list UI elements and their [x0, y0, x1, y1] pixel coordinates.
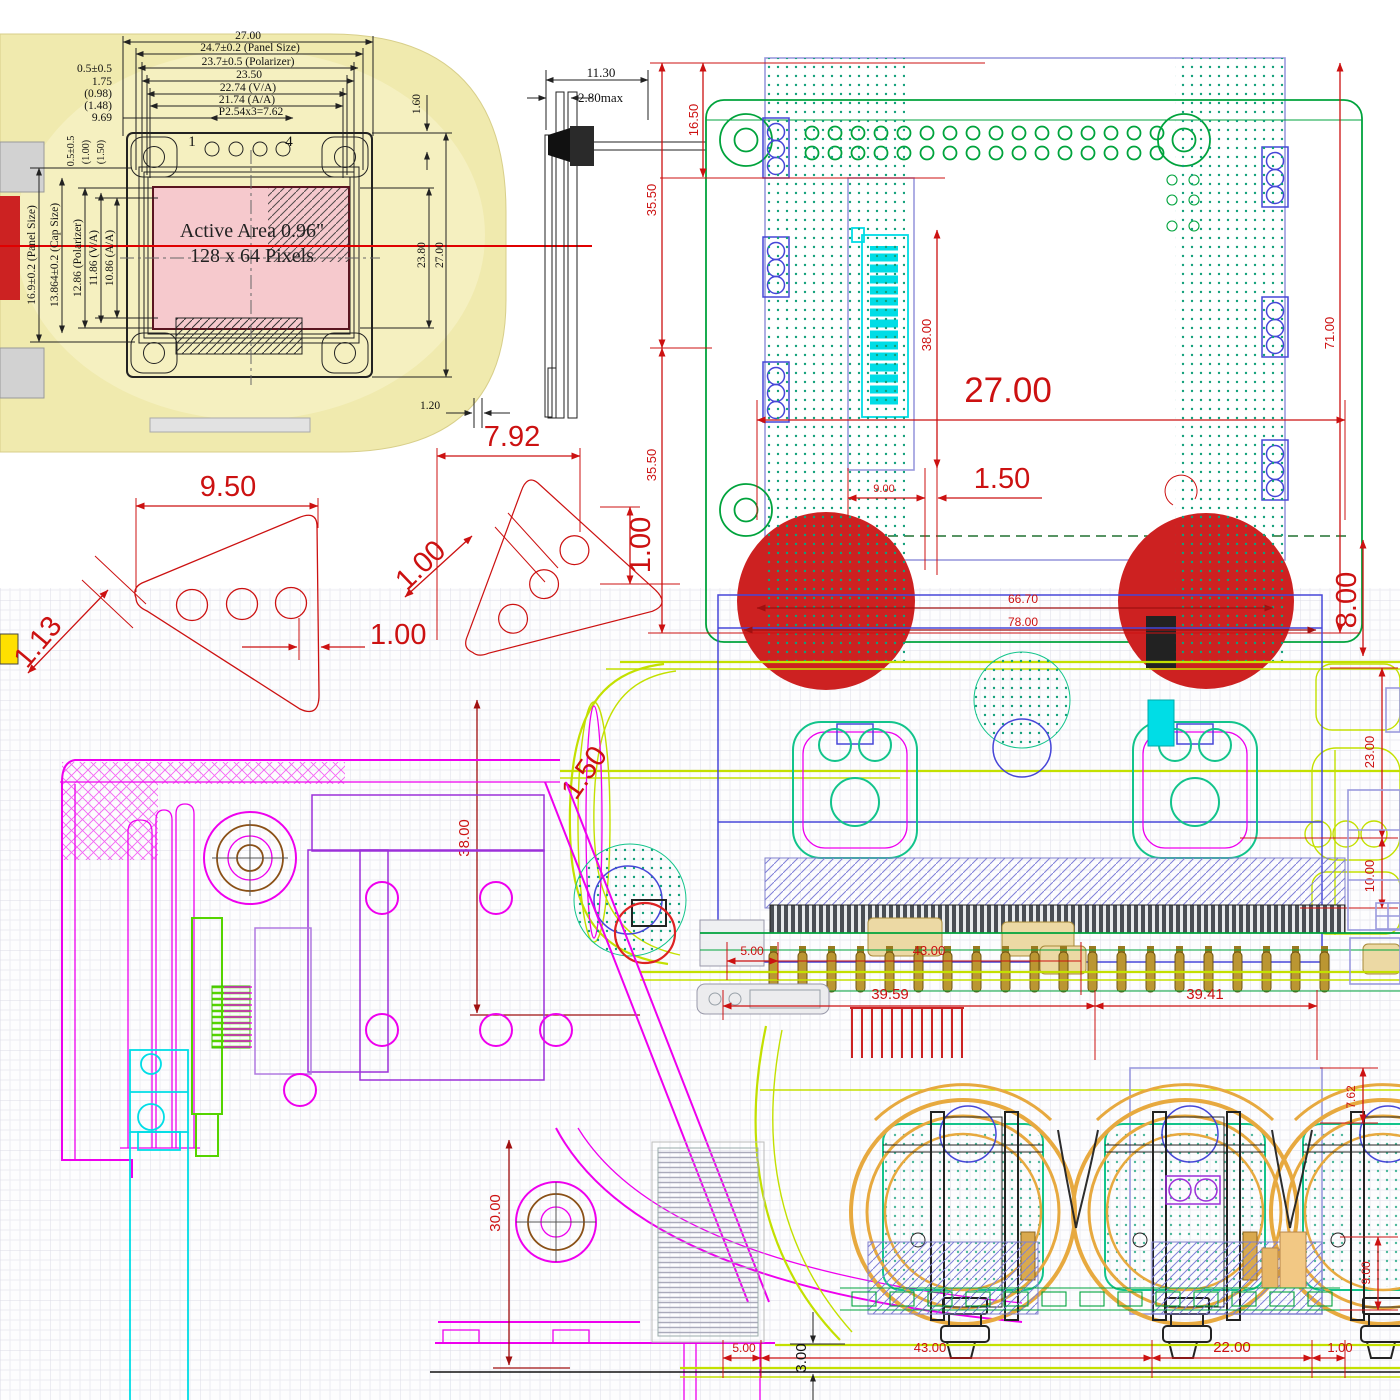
dim-35-50-lower: 35.50: [644, 449, 659, 482]
dim-9-00-r: 9.00: [1359, 1261, 1373, 1285]
dim-16-9: 16.9±0.2 (Panel Size): [26, 205, 38, 305]
dim-21-74: 21.74 (A/A): [219, 94, 275, 106]
fpc-connector-hatch: [176, 318, 302, 354]
dim-66-70: 66.70: [1008, 592, 1038, 606]
photo-fragment-tab-bottom: [0, 348, 44, 398]
dim-11-30: 11.30: [587, 65, 616, 80]
dim-7-92: 7.92: [484, 421, 540, 453]
tan-block-4: [1363, 944, 1400, 974]
grey-connector: [700, 920, 764, 966]
dim-1-20: 1.20: [420, 400, 440, 412]
dim-3-00: 3.00: [793, 1343, 810, 1372]
dim-23-80: 23.80: [416, 242, 428, 268]
pin-4-label: 4: [285, 134, 293, 150]
dim-2-80max: 2.80max: [578, 90, 624, 105]
dim-5-00-upper: 5.00: [740, 944, 764, 958]
tan-post: [1262, 1248, 1278, 1288]
dim-5-00: 5.00: [732, 1341, 756, 1355]
grey-socket: [697, 984, 829, 1014]
dim-27-00-big: 27.00: [964, 371, 1052, 410]
dim-78-00: 78.00: [1008, 615, 1038, 629]
black-component: [1146, 616, 1176, 668]
dim-12-86: 12.86 (Polarizer): [72, 219, 84, 297]
pin-1-label: 1: [188, 134, 196, 150]
side-connector-body: [570, 126, 594, 166]
dim-1-60: 1.60: [411, 94, 423, 114]
stipple-strip-left: [765, 58, 905, 662]
dim-left-top-c: (1.50): [96, 140, 107, 164]
header-hatch-band: [765, 858, 1345, 908]
tan-cylinder: [1280, 1232, 1306, 1288]
dim-left-top-a: 0.5±0.5: [66, 136, 77, 167]
photo-fragment-tab-top: [0, 142, 44, 192]
active-area-title: Active Area 0.96": [180, 220, 324, 242]
dim-pitch: P2.54x3=7.62: [219, 106, 284, 118]
dim-9-50: 9.50: [200, 471, 256, 503]
dim-8-00-big: 8.00: [1331, 572, 1363, 628]
dim-13-864: 13.864±0.2 (Cap Size): [49, 203, 61, 307]
bearing-hub-lower: [516, 1182, 596, 1262]
dim-43-00: 43.00: [914, 1340, 947, 1355]
dim-1-00-r: 1.00: [1327, 1340, 1352, 1355]
dim-7-62: 7.62: [1344, 1085, 1358, 1109]
stipple-circle: [974, 652, 1070, 748]
photo-fragment-red-strip: [0, 196, 20, 300]
dim-10-00: 10.00: [1362, 860, 1377, 893]
dim-23-50: 23.50: [236, 69, 262, 81]
cad-collage-canvas: 1 4 Active Area 0.96" 128 x 64 Pixels 27…: [0, 0, 1400, 1400]
dim-1-75: 1.75: [92, 76, 112, 88]
dim-10-86: 10.86 (A/A): [104, 230, 116, 286]
dim-1-48: (1.48): [84, 100, 112, 112]
stipple-strip-right: [1175, 58, 1285, 662]
dim-11-86: 11.86 (V/A): [88, 230, 100, 286]
dim-1-00: 1.00: [370, 619, 426, 651]
dim-1-00-vert: 1.00: [625, 517, 657, 573]
dim-1-50-big: 1.50: [974, 463, 1030, 495]
active-area-subtitle: 128 x 64 Pixels: [190, 245, 314, 267]
dim-30-00: 30.00: [487, 1194, 504, 1232]
grey-rack: [658, 1148, 758, 1336]
dim-23-7: 23.7±0.5 (Polarizer): [202, 56, 295, 68]
dim-0-98: (0.98): [84, 88, 112, 100]
cad-collage-page: 1 4 Active Area 0.96" 128 x 64 Pixels 27…: [0, 0, 1400, 1400]
photo-connector-strip: [150, 418, 310, 432]
dim-38-00: 38.00: [919, 319, 934, 352]
hatch-plate-left: [868, 1242, 1038, 1314]
dim-35-50-upper: 35.50: [644, 184, 659, 217]
dim-27-00: 27.00: [235, 30, 261, 42]
dim-39-59: 39.59: [871, 986, 909, 1003]
dim-9-00: 9.00: [873, 483, 894, 495]
dim-27-00-v: 27.00: [434, 242, 446, 268]
hatch-top-band: [158, 762, 345, 784]
cyan-component: [1148, 700, 1174, 746]
dim-22-00: 22.00: [1213, 1339, 1251, 1356]
dim-22-74: 22.74 (V/A): [220, 82, 276, 94]
dim-left-top-b: (1.00): [81, 140, 92, 164]
dim-39-41: 39.41: [1186, 986, 1224, 1003]
dim-0-5: 0.5±0.5: [77, 63, 112, 75]
dim-43-00-upper: 43.00: [913, 943, 946, 958]
bearing-hub-upper: [204, 812, 296, 904]
dim-9-69: 9.69: [92, 112, 112, 124]
dim-71-00: 71.00: [1322, 317, 1337, 350]
dim-23-00: 23.00: [1362, 736, 1377, 769]
hatch-corner: [62, 762, 158, 860]
dim-24-7: 24.7±0.2 (Panel Size): [200, 42, 300, 54]
dim-16-50: 16.50: [686, 104, 701, 137]
